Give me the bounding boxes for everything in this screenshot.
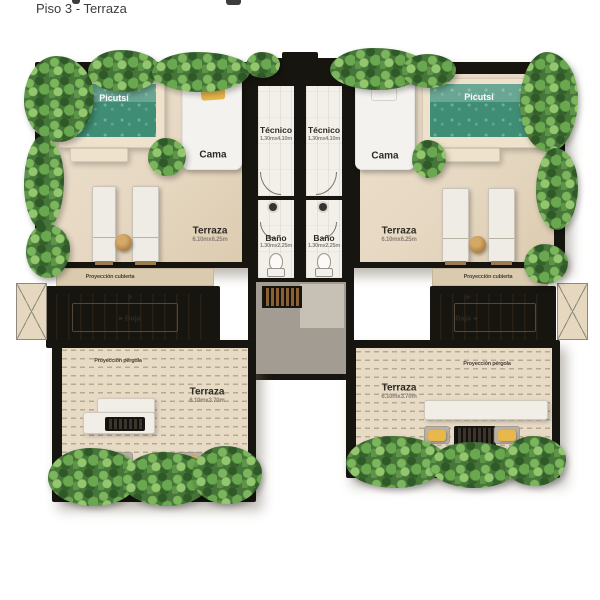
note-roof-projection-right: Proyección cubierta xyxy=(464,274,513,280)
toilet-tank-left xyxy=(267,268,285,277)
room-label-pool-left: Picutsi xyxy=(99,93,129,103)
shower-head-right-icon xyxy=(319,203,327,211)
room-label-bano-left: Baño xyxy=(265,233,286,243)
foliage-cluster xyxy=(520,52,578,152)
yellow-cushion xyxy=(498,430,516,441)
stairs-label-left: ▸ Baja xyxy=(119,314,141,323)
foliage-cluster xyxy=(536,148,578,230)
room-label-terrace-upper-left: Terraza xyxy=(193,226,228,237)
side-table-left xyxy=(115,234,132,251)
pool-step-right xyxy=(442,148,500,162)
exterior-ledge-right xyxy=(557,283,588,340)
room-label-bed-left: Cama xyxy=(199,150,226,161)
shower-head-left-icon xyxy=(269,203,277,211)
side-table-right xyxy=(469,236,486,253)
room-label-terrace-upper-right: Terraza xyxy=(382,226,417,237)
room-label-tecnico-right: Técnico xyxy=(308,125,340,135)
room-label-tecnico-left: Técnico xyxy=(260,125,292,135)
sun-lounger xyxy=(92,186,116,262)
stairs-label-right: Baja ◂ xyxy=(455,314,477,323)
exterior-ledge-left xyxy=(16,283,47,340)
room-dims-terrace-upper-right: 6.10mx6.25m xyxy=(381,237,416,243)
foliage-cluster xyxy=(524,244,568,284)
room-dims-terrace-lower-right: 6.10mx3.70m xyxy=(381,394,416,400)
room-label-terrace-lower-right: Terraza xyxy=(382,383,417,394)
cropped-text-fragment xyxy=(226,0,241,5)
toilet-tank-right xyxy=(315,268,333,277)
pool-step-left xyxy=(70,148,128,162)
yellow-cushion xyxy=(428,430,446,441)
sun-lounger xyxy=(488,188,515,262)
note-roof-projection-left: Proyección cubierta xyxy=(86,274,135,280)
room-dims-terrace-lower-left: 6.10mx3.70m xyxy=(189,398,224,404)
floor-plan-page: Piso 3 - Terraza xyxy=(0,0,600,600)
foliage-cluster xyxy=(504,436,566,486)
bench-sofa-right xyxy=(424,400,548,420)
note-pergola-projection-left: Proyección pérgola xyxy=(94,358,141,364)
room-label-terrace-lower-left: Terraza xyxy=(190,387,225,398)
sun-lounger xyxy=(132,186,159,262)
core-hall-light-area xyxy=(300,284,344,328)
sun-lounger xyxy=(442,188,469,262)
room-label-bano-right: Baño xyxy=(313,233,334,243)
fire-table-left xyxy=(105,417,145,431)
stair-arrow-dot xyxy=(466,295,470,299)
roof-projection-strip-left xyxy=(56,268,214,286)
room-label-pool-right: Picutsi xyxy=(464,92,494,102)
cropped-text-fragment xyxy=(72,0,80,4)
room-dims-tecnico-left: 1.30mx4.10m xyxy=(260,136,292,142)
room-dims-bano-left: 1.30mx2.25m xyxy=(260,243,292,249)
page-title: Piso 3 - Terraza xyxy=(36,1,127,16)
stair-arrow-dot xyxy=(128,295,132,299)
room-dims-terrace-upper-left: 6.10mx6.25m xyxy=(192,237,227,243)
hall-bench xyxy=(262,286,302,308)
room-dims-tecnico-right: 1.30mx4.10m xyxy=(308,136,340,142)
note-pergola-projection-right: Proyección pérgola xyxy=(463,361,510,367)
room-dims-bano-right: 1.30mx2.25m xyxy=(308,243,340,249)
room-label-bed-right: Cama xyxy=(371,151,398,162)
